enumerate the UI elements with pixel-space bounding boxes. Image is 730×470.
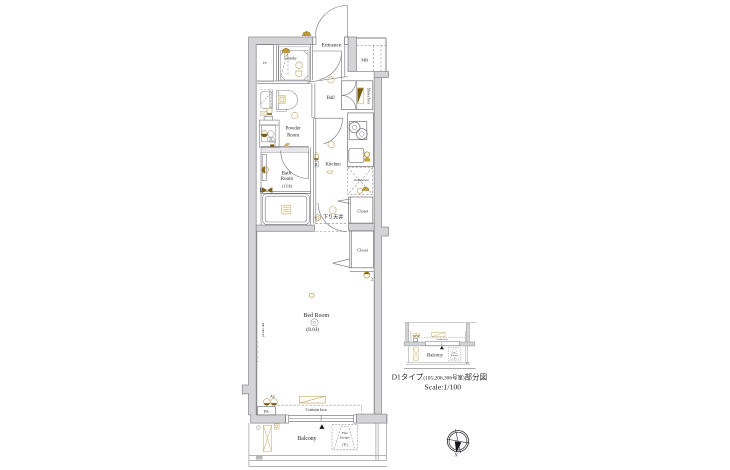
svg-text:(下): (下): [453, 357, 457, 360]
svg-text:(8.0J): (8.0J): [306, 326, 319, 333]
svg-text:Scale:1/100: Scale:1/100: [424, 383, 461, 392]
svg-text:Balcony: Balcony: [427, 354, 444, 359]
svg-text:Escape: Escape: [340, 435, 350, 439]
svg-text:Kitchen: Kitchen: [325, 163, 341, 168]
svg-text:Closet: Closet: [358, 208, 370, 213]
svg-text:2: 2: [371, 277, 373, 282]
svg-text:D1タイプ(105,206,306号室)部分図: D1タイプ(105,206,306号室)部分図: [392, 371, 488, 381]
svg-text:PS: PS: [264, 409, 268, 414]
svg-text:Balcony: Balcony: [297, 436, 316, 442]
svg-text:Bath: Bath: [282, 171, 292, 176]
svg-text:Powder: Powder: [286, 127, 301, 132]
svg-text:Closet: Closet: [357, 248, 369, 253]
svg-text:PS: PS: [263, 61, 267, 65]
svg-text:picture rail: picture rail: [261, 323, 265, 337]
svg-text:AC: AC: [270, 395, 276, 399]
svg-text:Curtain box: Curtain box: [436, 338, 448, 341]
svg-text:Shoes box: Shoes box: [367, 88, 372, 105]
svg-text:Hall: Hall: [327, 96, 336, 101]
svg-text:Room: Room: [281, 177, 293, 182]
svg-text:Refrigerator: Refrigerator: [354, 178, 368, 182]
svg-text:下り天井: 下り天井: [323, 212, 344, 220]
svg-text:Bed Room: Bed Room: [303, 313, 329, 319]
svg-text:(下): (下): [342, 443, 349, 447]
svg-text:MB: MB: [361, 58, 368, 63]
svg-text:N: N: [453, 453, 458, 458]
svg-text:Curtain box: Curtain box: [306, 407, 328, 412]
svg-text:R: R: [315, 162, 318, 167]
svg-text:Room: Room: [287, 133, 299, 138]
svg-text:(1116): (1116): [282, 185, 293, 189]
svg-text:Laundry: Laundry: [284, 57, 297, 61]
svg-text:Entrance: Entrance: [321, 43, 342, 49]
